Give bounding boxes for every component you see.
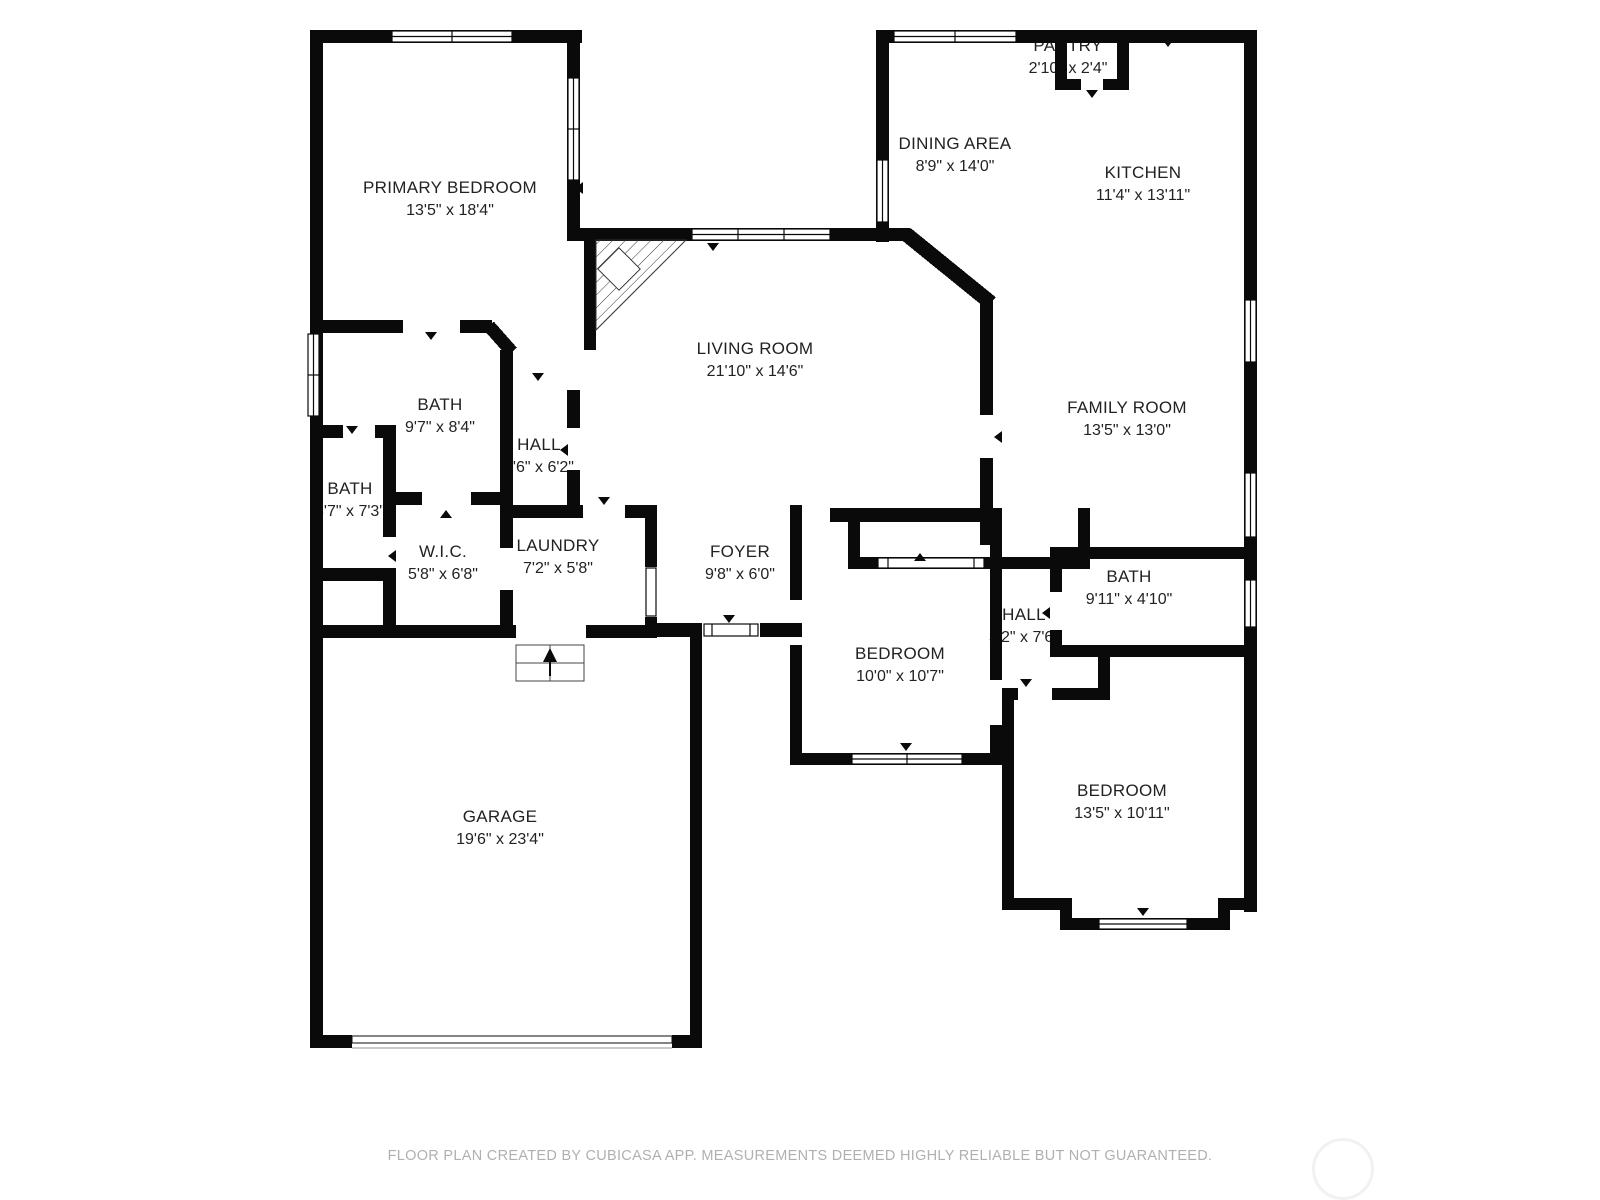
room-label-bath-1: BATH 9'7" x 8'4" [405, 393, 475, 439]
room-dims: 21'10" x 14'6" [697, 361, 814, 383]
room-dims: 10'0" x 10'7" [855, 666, 945, 688]
room-dims: 3'2" x 7'6" [989, 627, 1059, 649]
room-dims: 5'8" x 6'8" [408, 564, 478, 586]
room-labels: PRIMARY BEDROOM 13'5" x 18'4" PANTRY 2'1… [0, 0, 1600, 1200]
room-label-bedroom-1: BEDROOM 10'0" x 10'7" [855, 642, 945, 688]
room-dims: 9'11" x 4'10" [1086, 589, 1173, 611]
room-name: PANTRY [1029, 34, 1108, 58]
room-dims: 13'5" x 18'4" [363, 200, 537, 222]
room-dims: 7'2" x 5'8" [516, 558, 599, 580]
room-name: HALL [989, 603, 1059, 627]
room-dims: 2'10" x 2'4" [1029, 58, 1108, 80]
room-label-kitchen: KITCHEN 11'4" x 13'11" [1096, 161, 1190, 207]
room-name: KITCHEN [1096, 161, 1190, 185]
room-dims: 19'6" x 23'4" [456, 829, 544, 851]
room-name: FOYER [705, 540, 775, 564]
room-label-wic: W.I.C. 5'8" x 6'8" [408, 540, 478, 586]
room-name: BATH [315, 477, 385, 501]
room-name: DINING AREA [899, 132, 1012, 156]
room-dims: 9'8" x 6'0" [705, 564, 775, 586]
room-name: GARAGE [456, 805, 544, 829]
room-label-bedroom-2: BEDROOM 13'5" x 10'11" [1074, 779, 1169, 825]
room-label-garage: GARAGE 19'6" x 23'4" [456, 805, 544, 851]
room-name: BEDROOM [1074, 779, 1169, 803]
room-dims: 13'5" x 10'11" [1074, 803, 1169, 825]
room-dims: 13'5" x 13'0" [1067, 420, 1187, 442]
room-name: LAUNDRY [516, 534, 599, 558]
room-label-family-room: FAMILY ROOM 13'5" x 13'0" [1067, 396, 1187, 442]
room-dims: 11'4" x 13'11" [1096, 185, 1190, 207]
room-label-dining-area: DINING AREA 8'9" x 14'0" [899, 132, 1012, 178]
room-label-living-room: LIVING ROOM 21'10" x 14'6" [697, 337, 814, 383]
room-name: W.I.C. [408, 540, 478, 564]
room-label-hall-2: HALL 3'2" x 7'6" [989, 603, 1059, 649]
footer-disclaimer: FLOOR PLAN CREATED BY CUBICASA APP. MEAS… [0, 1148, 1600, 1164]
room-name: BATH [405, 393, 475, 417]
room-name: FAMILY ROOM [1067, 396, 1187, 420]
room-label-foyer: FOYER 9'8" x 6'0" [705, 540, 775, 586]
room-dims: 3'6" x 6'2" [504, 457, 574, 479]
room-label-laundry: LAUNDRY 7'2" x 5'8" [516, 534, 599, 580]
room-name: HALL [504, 433, 574, 457]
room-name: PRIMARY BEDROOM [363, 176, 537, 200]
room-name: BATH [1086, 565, 1173, 589]
room-label-primary-bedroom: PRIMARY BEDROOM 13'5" x 18'4" [363, 176, 537, 222]
room-label-bath-3: BATH 9'11" x 4'10" [1086, 565, 1173, 611]
room-name: BEDROOM [855, 642, 945, 666]
room-dims: 3'7" x 7'3" [315, 501, 385, 523]
floor-plan: PRIMARY BEDROOM 13'5" x 18'4" PANTRY 2'1… [0, 0, 1600, 1200]
room-label-hall-1: HALL 3'6" x 6'2" [504, 433, 574, 479]
room-label-pantry: PANTRY 2'10" x 2'4" [1029, 34, 1108, 80]
room-name: LIVING ROOM [697, 337, 814, 361]
room-dims: 9'7" x 8'4" [405, 417, 475, 439]
room-dims: 8'9" x 14'0" [899, 156, 1012, 178]
room-label-bath-2: BATH 3'7" x 7'3" [315, 477, 385, 523]
